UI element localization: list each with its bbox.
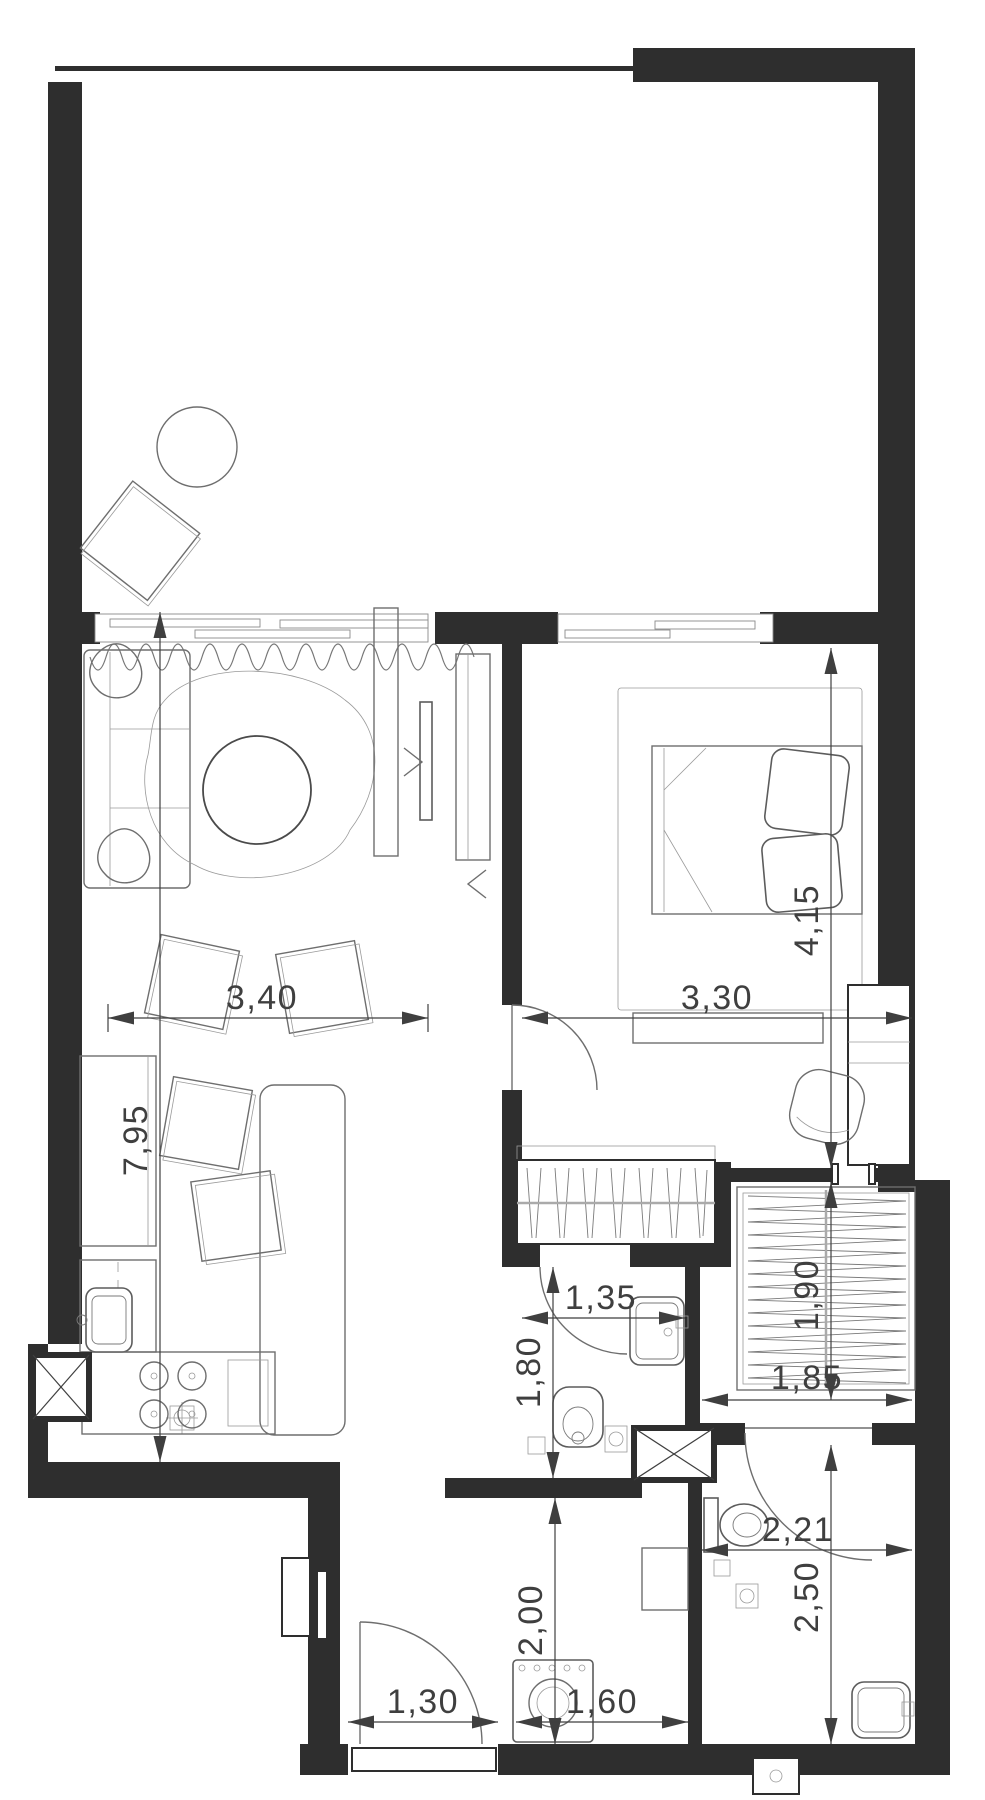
dim-label-hall-depth: 2,00 [512, 1584, 550, 1656]
wall-niche [318, 1572, 326, 1638]
coffee-table [203, 736, 311, 844]
pier-center [435, 612, 558, 644]
bottom-left-wall [28, 1462, 315, 1498]
bottom-wall [498, 1744, 950, 1775]
tv-chevron-icon [468, 870, 486, 898]
sofa-pillow-blob [90, 644, 142, 698]
terrace-edge-line [55, 66, 633, 71]
exterior-box [753, 1758, 799, 1794]
dim-label-bedroom-depth: 4,15 [788, 884, 826, 956]
toilet [553, 1387, 603, 1447]
bedroom-tv-console [456, 654, 490, 860]
living-window-panel [110, 619, 260, 627]
bedroom-bottom-wall-b [875, 1168, 915, 1182]
dim-label-hall-width: 1,60 [566, 1683, 638, 1721]
paper-holder-icon [528, 1437, 545, 1454]
door-jamb [869, 1164, 875, 1184]
dim-label-bath2-width: 2,21 [762, 1511, 834, 1549]
bedroom-window-panel [565, 630, 670, 638]
right-wall-lower [915, 1180, 950, 1775]
bath1-right-wall [685, 1267, 700, 1425]
floor-plan-page: 3,40 3,30 4,15 7,95 1,35 1,80 1,90 [0, 0, 985, 1800]
hall-bottom-wall-a [502, 1243, 540, 1267]
oven [228, 1360, 268, 1426]
entry-column [282, 1558, 310, 1636]
windows [90, 614, 773, 670]
blanket-line [664, 830, 712, 912]
terrace-chair [78, 481, 203, 606]
hall-cabinet [642, 1548, 688, 1610]
kitchen-sink [86, 1288, 132, 1352]
bedroom [456, 654, 910, 1165]
living-room [84, 608, 432, 888]
hall-bottom-wall-b [630, 1243, 731, 1267]
living-window-panel [195, 630, 350, 638]
bath1-sink [630, 1297, 688, 1365]
bedroom-window-panel [655, 621, 755, 629]
entry-jamb-left [300, 1744, 348, 1775]
bedroom-bottom-wall-a [700, 1168, 832, 1182]
stove-burner-icon [140, 1362, 168, 1390]
shaft-box-icon [33, 1355, 89, 1419]
pier-left [48, 612, 100, 644]
bedroom-cabinet [848, 985, 910, 1165]
floor-drain-icon [166, 1402, 198, 1434]
dim-label-closet-depth: 1,90 [788, 1259, 826, 1331]
dim-label-closet-width: 1,85 [771, 1359, 843, 1397]
dim-label-entry-door-width: 1,30 [387, 1683, 459, 1721]
bath2-left-wall [688, 1445, 702, 1744]
sofa [84, 650, 190, 888]
kitchen-counter-bottom [82, 1352, 275, 1434]
dining-table [260, 1085, 345, 1435]
corner-wall [300, 1462, 340, 1498]
dim-label-bedroom-width: 3,30 [681, 979, 753, 1017]
left-wall [48, 82, 82, 1344]
dining-chair [159, 1077, 256, 1174]
blanket-line [664, 748, 706, 790]
bath2-sink [852, 1682, 914, 1738]
toilet [704, 1498, 768, 1552]
living-tv-console [374, 608, 398, 856]
living-window-panel [280, 620, 428, 628]
rug [145, 671, 375, 878]
pier-right [760, 612, 915, 644]
partition-upper [502, 644, 522, 1005]
dim-label-living-width: 3,40 [226, 979, 298, 1017]
curtain-line [90, 644, 474, 670]
bath2-top-wall-b [872, 1423, 915, 1445]
wardrobe-shelf [517, 1146, 715, 1160]
drain-icon [605, 1426, 627, 1452]
shaft-box-icon [634, 1428, 714, 1480]
shafts [33, 1355, 714, 1480]
dim-label-apartment-depth: 7,95 [117, 1104, 155, 1176]
dim-label-bath1-depth: 1,80 [510, 1336, 548, 1408]
pillow [763, 748, 850, 837]
terrace [78, 407, 237, 606]
dim-label-bath1-width: 1,35 [565, 1279, 637, 1317]
dim-label-bath2-depth: 2,50 [788, 1561, 826, 1633]
stove-burner-icon [178, 1362, 206, 1390]
sofa-pillow-blob [98, 829, 150, 883]
drain-icon [736, 1584, 758, 1608]
top-wall [633, 48, 915, 82]
paper-holder-icon [714, 1560, 730, 1576]
terrace-table [157, 407, 237, 487]
stove-burner-icon [140, 1400, 168, 1428]
dining-chair [191, 1170, 286, 1265]
bath1-bottom-wall [445, 1478, 642, 1498]
floor-plan-drawing: 3,40 3,30 4,15 7,95 1,35 1,80 1,90 [0, 0, 985, 1800]
entry-threshold [352, 1748, 496, 1771]
door-jamb [832, 1164, 838, 1184]
kitchen [77, 1056, 275, 1434]
